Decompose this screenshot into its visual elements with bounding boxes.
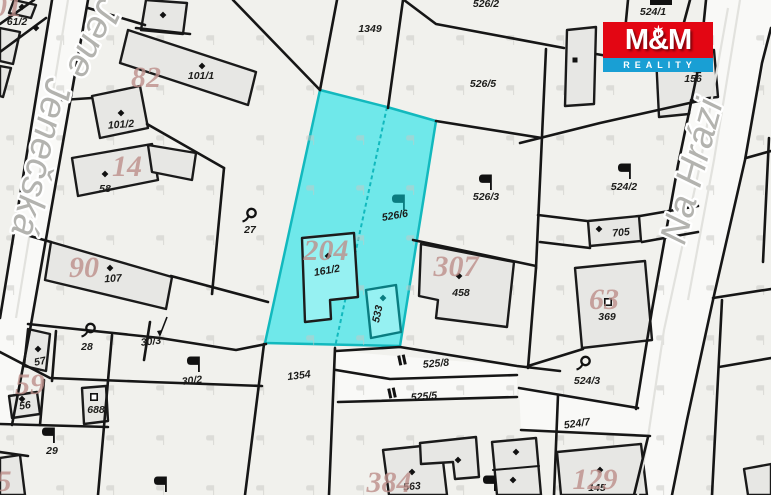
building-dot	[573, 58, 578, 63]
parcel-number-label: 30/2	[181, 374, 203, 388]
parcel-number-label: 688	[87, 404, 105, 416]
parcel-number-label: 27	[243, 224, 257, 236]
parcel-number-label: 525/5	[410, 390, 437, 404]
parcel-number-label: 101/2	[107, 118, 134, 132]
house-number-label: 5	[0, 465, 12, 495]
house-number-label: 82	[131, 61, 161, 94]
logo-star-icon: ✶	[653, 23, 663, 39]
building	[565, 27, 596, 106]
parcel-number-label: 101/1	[188, 70, 214, 82]
parcel-number-label: 524/1	[640, 6, 666, 18]
parcel-number-label: 524/2	[611, 181, 637, 193]
parcel-number-label: 525/8	[422, 357, 449, 371]
house-number-label: 90	[69, 251, 99, 284]
parcel-number-label: 29	[45, 445, 58, 457]
flag-bar-icon	[650, 0, 672, 5]
parcel-number-label: 458	[451, 287, 470, 299]
parcel-number-label: 705	[612, 226, 631, 240]
parcel-number-label: 526/3	[473, 191, 499, 203]
parcel-number-label: 526/2	[473, 0, 499, 10]
cadastral-map[interactable]: 61/2101/1101/258271071349526/2526/5526/3…	[0, 0, 771, 495]
house-number-label: 14	[112, 150, 142, 183]
logo-reality-text: REALITY	[603, 58, 713, 72]
parcel-number-label: 58	[99, 183, 111, 195]
parcel-number-label: 28	[80, 341, 93, 353]
parcel-number-label: 107	[104, 272, 123, 285]
house-number-label: 384	[366, 466, 412, 495]
parcel-number-label: 30/3	[140, 335, 162, 349]
house-number-label: 307	[433, 250, 480, 283]
logo-mm-text: M&M ✶	[603, 22, 713, 58]
house-number-label: 01	[0, 0, 22, 23]
parcel-number-label: 56	[18, 399, 31, 413]
parcel-number-label: 526/5	[470, 78, 496, 90]
cadastral-map-canvas[interactable]: 61/2101/1101/258271071349526/2526/5526/3…	[0, 0, 771, 495]
house-number-label: 129	[573, 463, 618, 495]
building-dot	[91, 394, 97, 400]
mm-reality-logo: M&M ✶ REALITY	[603, 22, 713, 72]
house-number-label: 63	[589, 283, 619, 316]
building	[744, 464, 771, 495]
parcel-number-label: 1349	[358, 23, 382, 35]
parcel-number-label: 156	[684, 73, 702, 85]
house-number-label: 204	[303, 234, 349, 267]
house-number-label: 59	[15, 368, 45, 401]
parcel-number-label: 524/3	[574, 375, 600, 387]
